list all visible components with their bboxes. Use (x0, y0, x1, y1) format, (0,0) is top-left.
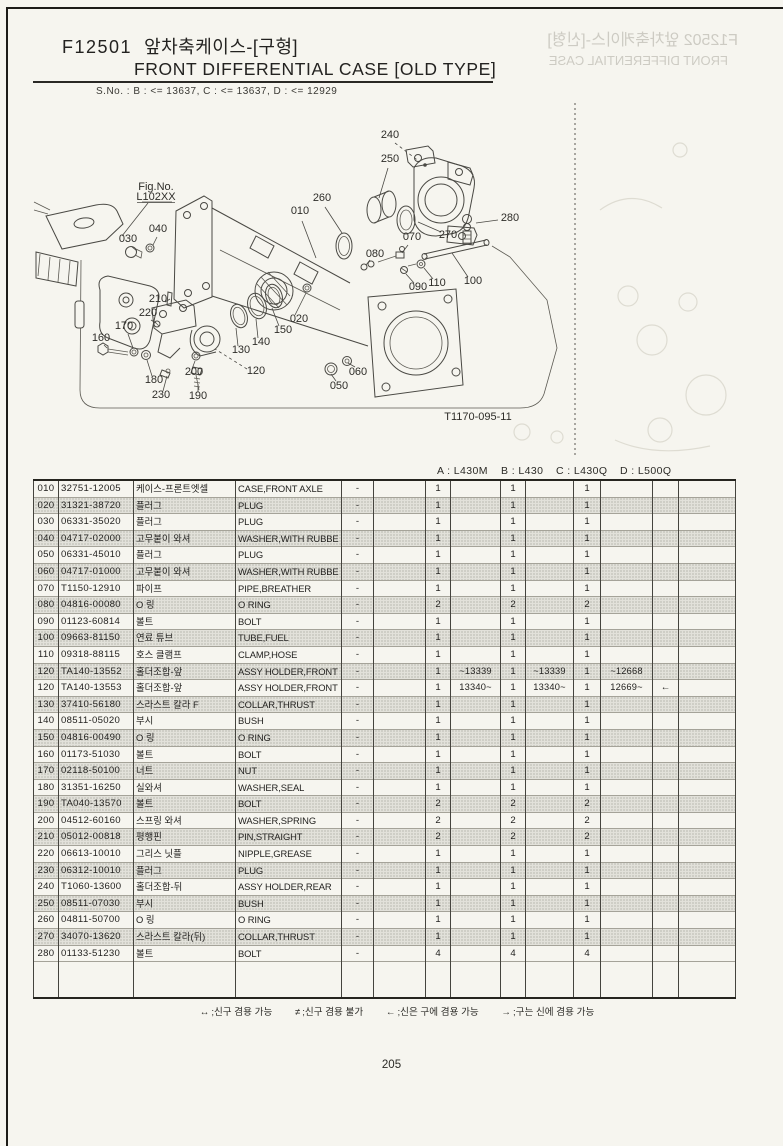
leader-line (192, 361, 195, 369)
table-row: 070 T1150-12910 파이프 PIPE,BREATHER - 1 1 … (34, 580, 736, 597)
qty-c-cell: 1 (574, 497, 601, 514)
qty-c-cell: 2 (574, 812, 601, 829)
description-kr-cell: 플러그 (134, 497, 236, 514)
leader-line (331, 374, 336, 381)
serial-d-cell (679, 779, 736, 796)
part-ref-label: 020 (290, 313, 308, 325)
breather-pipe-parts (361, 239, 490, 273)
ref-no-cell: 150 (34, 729, 59, 746)
ref-no-cell: 140 (34, 713, 59, 730)
description-en-cell: WASHER,WITH RUBBE (236, 530, 342, 547)
interchange-symbol-cell: - (342, 680, 374, 697)
spacer-cell (374, 563, 426, 580)
not-interchangeable-icon: ≠ (295, 1007, 300, 1018)
qty-d-cell (653, 696, 679, 713)
knuckle-arm-upper (34, 202, 123, 249)
part-ref-label: 280 (501, 212, 519, 224)
part-number-cell: 31321-38720 (59, 497, 134, 514)
serial-b-cell (526, 530, 574, 547)
qty-c-cell: 1 (574, 846, 601, 863)
leader-line (366, 260, 370, 265)
interchange-symbol-cell: - (342, 630, 374, 647)
serial-c-cell (601, 812, 653, 829)
spacer-cell (374, 862, 426, 879)
qty-b-cell: 1 (501, 530, 526, 547)
qty-a-cell: 1 (426, 680, 451, 697)
qty-d-cell (653, 895, 679, 912)
serial-c-cell (601, 796, 653, 813)
serial-a-cell (451, 547, 501, 564)
qty-d-cell (653, 779, 679, 796)
part-ref-label: 150 (274, 324, 292, 336)
qty-c-cell: 2 (574, 829, 601, 846)
qty-b-cell: 2 (501, 812, 526, 829)
serial-d-cell (679, 746, 736, 763)
serial-b-cell (526, 514, 574, 531)
qty-d-cell (653, 929, 679, 946)
ref-no-cell: 040 (34, 530, 59, 547)
serial-d-cell (679, 563, 736, 580)
spacer-cell (374, 480, 426, 497)
legend-item: →;구는 신에 겸용 가능 (501, 1007, 594, 1018)
ref-no-cell: 190 (34, 796, 59, 813)
serial-a-cell (451, 929, 501, 946)
table-row: 040 04717-02000 고무붙이 와셔 WASHER,WITH RUBB… (34, 530, 736, 547)
leader-line (379, 168, 388, 198)
table-row: 180 31351-16250 실와셔 WASHER,SEAL - 1 1 1 (34, 779, 736, 796)
qty-a-cell: 2 (426, 812, 451, 829)
qty-d-cell (653, 862, 679, 879)
leader-line (418, 222, 441, 232)
serial-c-cell (601, 514, 653, 531)
qty-c-cell: 1 (574, 696, 601, 713)
serial-b-cell (526, 613, 574, 630)
leader-line (476, 220, 498, 223)
interchange-symbol-cell: - (342, 713, 374, 730)
spacer-cell (374, 812, 426, 829)
serial-c-cell (601, 829, 653, 846)
description-kr-cell: 스라스트 칼라 F (134, 696, 236, 713)
qty-b-cell: 1 (501, 547, 526, 564)
description-kr-cell: 플러그 (134, 547, 236, 564)
qty-a-cell: 1 (426, 862, 451, 879)
fig-no-callout (122, 202, 172, 236)
spacer-cell (374, 763, 426, 780)
qty-d-cell (653, 646, 679, 663)
legend-item: ≠;신구 겸용 불가 (295, 1007, 363, 1018)
serial-b-cell (526, 895, 574, 912)
qty-b-cell: 1 (501, 613, 526, 630)
table-row: 230 06312-10010 플러그 PLUG - 1 1 1 (34, 862, 736, 879)
bleed-through-line1: F12502 앞차축케이스-[신형] (428, 30, 738, 52)
part-ref-label: 070 (403, 231, 421, 243)
scan-edge-left (6, 7, 8, 1146)
page-title: F12501앞차축케이스-[구형] (62, 33, 298, 59)
serial-a-cell (451, 497, 501, 514)
description-kr-cell: 홀더조합-뒤 (134, 879, 236, 896)
spacer-cell (374, 630, 426, 647)
description-kr-cell: 파이프 (134, 580, 236, 597)
qty-c-cell: 1 (574, 929, 601, 946)
qty-d-cell (653, 530, 679, 547)
serial-b-cell (526, 846, 574, 863)
description-en-cell: BOLT (236, 796, 342, 813)
qty-c-cell: 1 (574, 862, 601, 879)
leader-line (153, 237, 157, 245)
spacer-cell (374, 796, 426, 813)
serial-number-note: S.No. : B : <= 13637, C : <= 13637, D : … (96, 86, 337, 97)
interchange-symbol-cell: - (342, 779, 374, 796)
qty-c-cell: 4 (574, 945, 601, 962)
serial-b-cell: 13340~ (526, 680, 574, 697)
serial-b-cell (526, 497, 574, 514)
serial-d-cell (679, 696, 736, 713)
qty-c-cell: 1 (574, 663, 601, 680)
serial-c-cell (601, 713, 653, 730)
part-ref-label: 010 (291, 205, 309, 217)
table-row: 260 04811-50700 O 링 O RING - 1 1 1 (34, 912, 736, 929)
table-row: 050 06331-45010 플러그 PLUG - 1 1 1 (34, 547, 736, 564)
qty-b-cell: 1 (501, 563, 526, 580)
interchange-symbol-cell: - (342, 829, 374, 846)
part-ref-label: 050 (330, 380, 348, 392)
serial-d-cell (679, 829, 736, 846)
qty-b-cell: 2 (501, 796, 526, 813)
qty-a-cell: 1 (426, 563, 451, 580)
leader-line (325, 207, 342, 233)
spacer-cell (374, 597, 426, 614)
interchange-symbol-cell: - (342, 696, 374, 713)
serial-b-cell (526, 912, 574, 929)
table-row: 250 08511-07030 부시 BUSH - 1 1 1 (34, 895, 736, 912)
leader-line (147, 360, 152, 376)
serial-a-cell (451, 746, 501, 763)
small-fasteners (98, 244, 352, 390)
part-number-cell: 06613-10010 (59, 846, 134, 863)
ref-no-cell: 210 (34, 829, 59, 846)
serial-a-cell (451, 846, 501, 863)
model-header-b: B : L430 (501, 465, 543, 477)
serial-c-cell: 12669~ (601, 680, 653, 697)
qty-d-cell (653, 497, 679, 514)
qty-a-cell: 1 (426, 696, 451, 713)
table-row: 110 09318-88115 호스 클램프 CLAMP,HOSE - 1 1 … (34, 646, 736, 663)
description-en-cell: BUSH (236, 895, 342, 912)
qty-c-cell: 1 (574, 646, 601, 663)
interchange-symbol-cell: - (342, 846, 374, 863)
qty-d-cell (653, 846, 679, 863)
description-en-cell: WASHER,WITH RUBBE (236, 563, 342, 580)
description-en-cell: BUSH (236, 713, 342, 730)
table-row: 080 04816-00080 O 링 O RING - 2 2 2 (34, 597, 736, 614)
qty-a-cell: 1 (426, 514, 451, 531)
interchange-symbol-cell: - (342, 530, 374, 547)
qty-c-cell: 1 (574, 713, 601, 730)
serial-d-cell (679, 497, 736, 514)
ref-no-cell: 100 (34, 630, 59, 647)
description-en-cell: WASHER,SEAL (236, 779, 342, 796)
description-kr-cell: 스프링 와셔 (134, 812, 236, 829)
qty-a-cell: 1 (426, 929, 451, 946)
qty-b-cell: 1 (501, 480, 526, 497)
description-kr-cell: O 링 (134, 912, 236, 929)
qty-a-cell: 1 (426, 497, 451, 514)
ref-no-cell: 090 (34, 613, 59, 630)
qty-a-cell: 1 (426, 630, 451, 647)
serial-b-cell (526, 945, 574, 962)
qty-b-cell: 1 (501, 663, 526, 680)
qty-b-cell: 2 (501, 597, 526, 614)
serial-c-cell (601, 746, 653, 763)
serial-c-cell (601, 646, 653, 663)
description-en-cell: WASHER,SPRING (236, 812, 342, 829)
description-en-cell: NIPPLE,GREASE (236, 846, 342, 863)
qty-c-cell: 1 (574, 547, 601, 564)
qty-d-cell (653, 597, 679, 614)
serial-c-cell: ~12668 (601, 663, 653, 680)
serial-a-cell (451, 812, 501, 829)
interchange-symbol-cell: - (342, 729, 374, 746)
ref-no-cell: 060 (34, 563, 59, 580)
interchange-symbol-cell: - (342, 663, 374, 680)
description-kr-cell: 고무붙이 와셔 (134, 563, 236, 580)
part-number-cell: 01173-51030 (59, 746, 134, 763)
interchange-symbol-cell: - (342, 480, 374, 497)
part-number-cell: 04717-02000 (59, 530, 134, 547)
serial-d-cell (679, 862, 736, 879)
description-kr-cell: 플러그 (134, 862, 236, 879)
qty-d-cell (653, 912, 679, 929)
qty-a-cell: 1 (426, 763, 451, 780)
leader-line (163, 376, 167, 391)
spacer-cell (374, 547, 426, 564)
description-kr-cell: 플러그 (134, 514, 236, 531)
qty-b-cell: 1 (501, 746, 526, 763)
qty-d-cell (653, 547, 679, 564)
interchange-symbol-cell: - (342, 547, 374, 564)
description-en-cell: PLUG (236, 547, 342, 564)
interchange-symbol-cell: - (342, 929, 374, 946)
serial-b-cell (526, 796, 574, 813)
qty-b-cell: 1 (501, 729, 526, 746)
serial-a-cell: ~13339 (451, 663, 501, 680)
serial-a-cell (451, 613, 501, 630)
leader-line (151, 320, 156, 323)
part-number-cell: 04811-50700 (59, 912, 134, 929)
leader-line (256, 319, 258, 338)
serial-a-cell (451, 563, 501, 580)
table-row: 010 32751-12005 케이스-프론트엣셀 CASE,FRONT AXL… (34, 480, 736, 497)
ref-no-cell: 250 (34, 895, 59, 912)
serial-c-cell (601, 846, 653, 863)
serial-c-cell (601, 912, 653, 929)
table-row: 140 08511-05020 부시 BUSH - 1 1 1 (34, 713, 736, 730)
leader-line (402, 245, 408, 253)
title-korean: 앞차축케이스-[구형] (144, 37, 298, 57)
qty-a-cell: 2 (426, 597, 451, 614)
bleed-through-marks (514, 143, 726, 451)
part-ref-label: 220 (139, 307, 157, 319)
page-number: 205 (0, 1059, 783, 1071)
spacer-cell (374, 530, 426, 547)
serial-c-cell (601, 613, 653, 630)
serial-d-cell (679, 895, 736, 912)
table-row: 120 TA140-13553 홀더조합-앞 ASSY HOLDER,FRONT… (34, 680, 736, 697)
serial-c-cell (601, 547, 653, 564)
spacer-cell (374, 779, 426, 796)
spacer-cell (374, 713, 426, 730)
description-en-cell: BOLT (236, 945, 342, 962)
leader-line (395, 143, 420, 162)
qty-a-cell: 2 (426, 796, 451, 813)
serial-c-cell (601, 630, 653, 647)
part-ref-label: 100 (464, 275, 482, 287)
qty-a-cell: 1 (426, 746, 451, 763)
description-kr-cell: 너트 (134, 763, 236, 780)
description-kr-cell: O 링 (134, 729, 236, 746)
leader-line (165, 299, 170, 302)
serial-b-cell (526, 597, 574, 614)
description-en-cell: ASSY HOLDER,FRONT (236, 680, 342, 697)
part-number-cell: 06331-45010 (59, 547, 134, 564)
spacer-cell (374, 729, 426, 746)
qty-c-cell: 1 (574, 746, 601, 763)
part-ref-label: 110 (428, 277, 446, 289)
qty-b-cell: 1 (501, 763, 526, 780)
description-en-cell: NUT (236, 763, 342, 780)
interchange-symbol-cell: - (342, 613, 374, 630)
serial-b-cell (526, 746, 574, 763)
spacer-cell (374, 613, 426, 630)
leader-line (128, 334, 133, 348)
serial-d-cell (679, 846, 736, 863)
qty-b-cell: 1 (501, 630, 526, 647)
holder-front-assembly (152, 292, 220, 358)
ref-no-cell: 130 (34, 696, 59, 713)
qty-d-cell (653, 945, 679, 962)
serial-c-cell (601, 580, 653, 597)
spacer-cell (374, 580, 426, 597)
spacer-cell (374, 646, 426, 663)
fuel-tube-routing (75, 246, 557, 408)
serial-a-cell (451, 829, 501, 846)
spacer-cell (374, 895, 426, 912)
qty-a-cell: 1 (426, 646, 451, 663)
leader-line (295, 293, 306, 315)
table-row: 200 04512-60160 스프링 와셔 WASHER,SPRING - 2… (34, 812, 736, 829)
serial-c-cell (601, 862, 653, 879)
interchange-symbol-cell: - (342, 796, 374, 813)
ref-no-cell: 160 (34, 746, 59, 763)
description-kr-cell: 홀더조합-앞 (134, 680, 236, 697)
serial-b-cell (526, 779, 574, 796)
part-ref-label: 180 (145, 374, 163, 386)
serial-a-cell (451, 862, 501, 879)
qty-d-cell (653, 879, 679, 896)
part-ref-label: 250 (381, 153, 399, 165)
description-kr-cell: 스라스트 칼라(뒤) (134, 929, 236, 946)
qty-c-cell: 1 (574, 563, 601, 580)
qty-b-cell: 1 (501, 779, 526, 796)
description-en-cell: BOLT (236, 746, 342, 763)
spacer-cell (374, 829, 426, 846)
interchange-symbol-cell: - (342, 879, 374, 896)
part-number-cell: T1150-12910 (59, 580, 134, 597)
serial-a-cell (451, 713, 501, 730)
serial-a-cell (451, 480, 501, 497)
description-kr-cell: 볼트 (134, 613, 236, 630)
leader-line (104, 345, 107, 348)
serial-c-cell (601, 696, 653, 713)
model-header-a: A : L430M (437, 465, 488, 477)
part-ref-label: 030 (119, 233, 137, 245)
spacer-cell (374, 696, 426, 713)
serial-d-cell (679, 929, 736, 946)
description-en-cell: PLUG (236, 497, 342, 514)
serial-c-cell (601, 729, 653, 746)
both-ways-arrow-icon: ↔ (200, 1007, 210, 1018)
qty-c-cell: 2 (574, 796, 601, 813)
serial-d-cell (679, 480, 736, 497)
part-ref-label: 230 (152, 389, 170, 401)
qty-b-cell: 1 (501, 895, 526, 912)
part-number-cell: 04816-00490 (59, 729, 134, 746)
interchangeability-legend: ↔;신구 겸용 가능 ≠;신구 겸용 불가 ←;신은 구에 겸용 가능 →;구는… (33, 1004, 735, 1018)
serial-d-cell (679, 945, 736, 962)
table-row: 150 04816-00490 O 링 O RING - 1 1 1 (34, 729, 736, 746)
description-kr-cell: 부시 (134, 713, 236, 730)
spacer-cell (374, 497, 426, 514)
part-ref-label: L102XX (136, 191, 176, 203)
qty-d-cell (653, 563, 679, 580)
leader-line (348, 363, 355, 367)
leader-line (132, 247, 137, 251)
part-ref-label: 140 (252, 336, 270, 348)
part-number-cell: 04717-01000 (59, 563, 134, 580)
description-kr-cell: 볼트 (134, 796, 236, 813)
serial-b-cell (526, 929, 574, 946)
serial-b-cell (526, 729, 574, 746)
part-ref-label: 190 (189, 390, 207, 402)
scan-edge-top (6, 7, 783, 9)
serial-a-cell (451, 729, 501, 746)
serial-d-cell (679, 763, 736, 780)
qty-a-cell: 1 (426, 480, 451, 497)
qty-b-cell: 1 (501, 696, 526, 713)
serial-d-cell (679, 613, 736, 630)
description-en-cell: CLAMP,HOSE (236, 646, 342, 663)
serial-b-cell (526, 630, 574, 647)
qty-a-cell: 1 (426, 895, 451, 912)
qty-d-cell (653, 812, 679, 829)
qty-a-cell: 1 (426, 846, 451, 863)
description-en-cell: PIPE,BREATHER (236, 580, 342, 597)
axle-case (174, 196, 463, 397)
part-number-cell: 01133-51230 (59, 945, 134, 962)
table-row: 160 01173-51030 볼트 BOLT - 1 1 1 (34, 746, 736, 763)
interchange-symbol-cell: - (342, 646, 374, 663)
serial-c-cell (601, 480, 653, 497)
interchange-symbol-cell: - (342, 895, 374, 912)
serial-d-cell (679, 646, 736, 663)
parts-table: 010 32751-12005 케이스-프론트엣셀 CASE,FRONT AXL… (33, 479, 736, 999)
serial-d-cell (679, 597, 736, 614)
qty-d-cell (653, 480, 679, 497)
qty-c-cell: 1 (574, 680, 601, 697)
qty-a-cell: 1 (426, 912, 451, 929)
serial-d-cell (679, 580, 736, 597)
part-number-cell: 31351-16250 (59, 779, 134, 796)
